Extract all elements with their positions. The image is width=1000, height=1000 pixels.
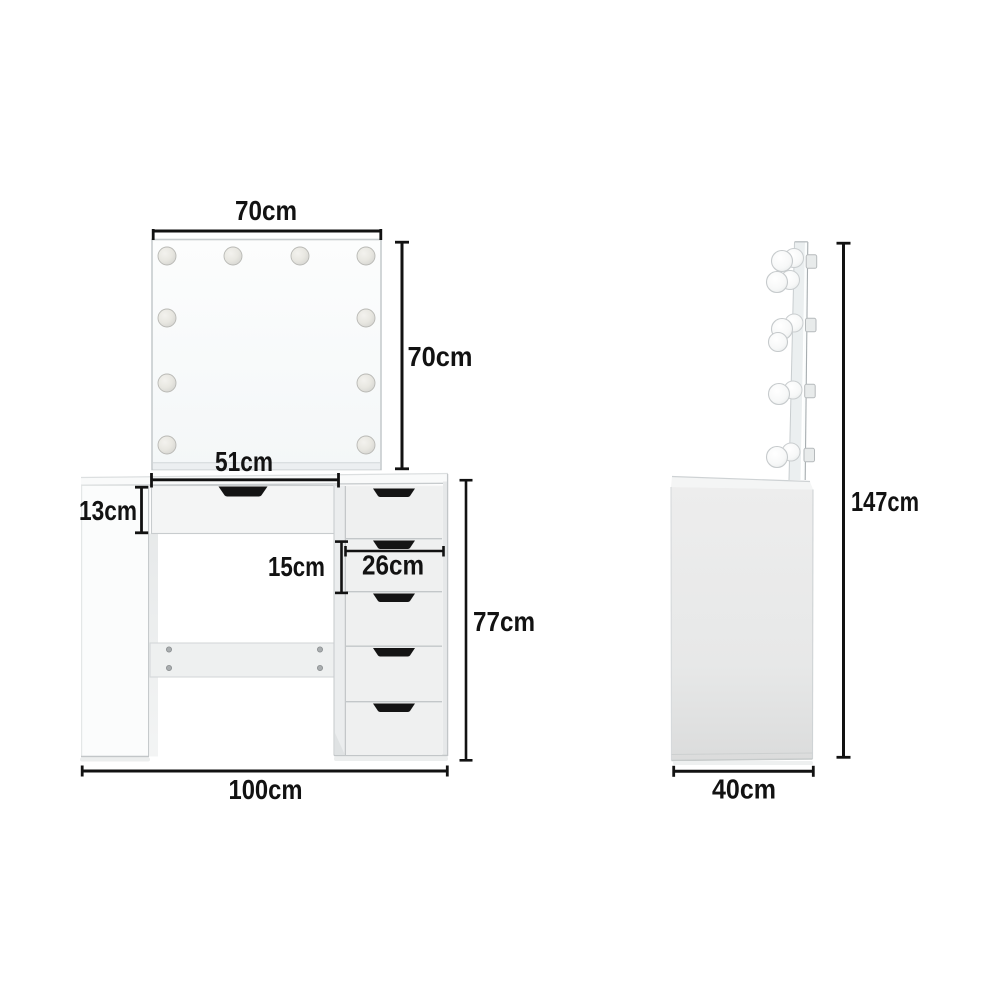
svg-text:100cm: 100cm xyxy=(229,774,303,805)
svg-text:147cm: 147cm xyxy=(851,486,919,517)
svg-text:26cm: 26cm xyxy=(362,550,424,581)
svg-text:51cm: 51cm xyxy=(215,446,273,477)
svg-text:15cm: 15cm xyxy=(268,551,325,582)
svg-text:40cm: 40cm xyxy=(712,774,776,805)
svg-text:70cm: 70cm xyxy=(235,195,297,226)
svg-text:13cm: 13cm xyxy=(79,495,137,526)
svg-text:70cm: 70cm xyxy=(408,341,473,372)
svg-text:77cm: 77cm xyxy=(473,606,535,637)
